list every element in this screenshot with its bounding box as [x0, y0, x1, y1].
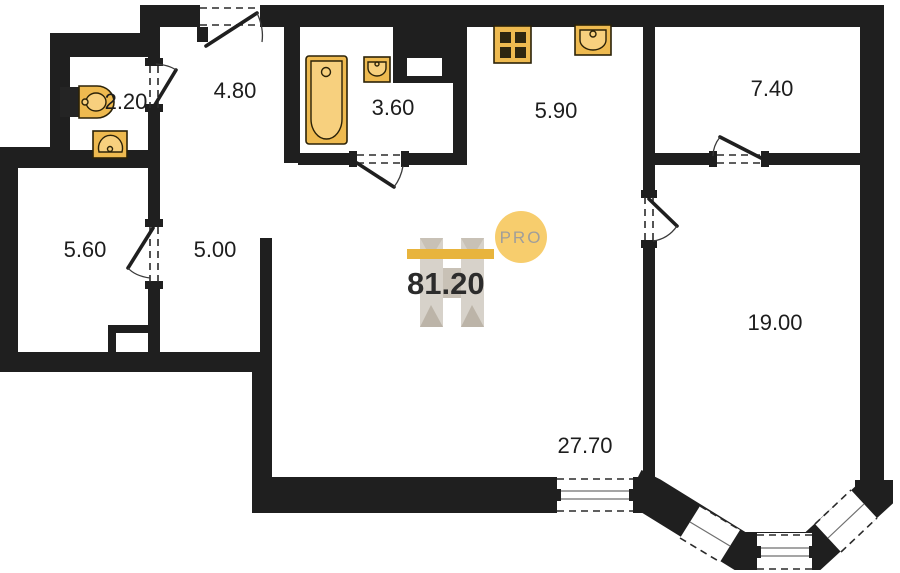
door-post [145, 281, 163, 289]
door-entrance [197, 5, 262, 46]
total-area-label: 81.20 [407, 266, 485, 301]
door-wc [150, 64, 176, 108]
window-living [553, 477, 637, 513]
wall-mid-vertical-b [148, 108, 160, 223]
door-post [145, 219, 163, 227]
bathroom-shaft-niche [407, 58, 442, 76]
room-label-corridor: 5.00 [194, 237, 237, 262]
door-storage [128, 227, 158, 283]
door-bedroom [645, 197, 677, 242]
wall-bathroom-left [284, 22, 300, 163]
window-post [553, 489, 561, 501]
door-bathroom [357, 155, 403, 187]
kitchen-sink-icon [575, 25, 611, 55]
door-post [401, 151, 409, 167]
floor-plan-svg: PRO 81.20 2.20 4.80 3.60 5.90 7.40 5.60 … [0, 0, 900, 573]
room-label-hallway: 4.80 [214, 78, 257, 103]
wall-corridor-lower [252, 352, 272, 482]
wc-sink-icon [93, 131, 127, 158]
room-label-kitchen: 5.90 [535, 98, 578, 123]
door-room740 [713, 137, 761, 163]
wall-left-outer [0, 147, 18, 372]
wall-bottom-outer [252, 477, 557, 513]
wall-kitchen-room740 [643, 27, 655, 163]
gold-bar [407, 249, 494, 259]
window-post [753, 546, 761, 558]
toilet-tank [60, 87, 79, 117]
wall-top-right [260, 5, 880, 27]
door-post [641, 190, 657, 198]
window-bay-center [753, 533, 817, 571]
wall-corridor [260, 238, 272, 352]
pro-badge-label: PRO [500, 228, 543, 247]
room-label-room740: 7.40 [751, 76, 794, 101]
stove-icon [494, 26, 531, 63]
wall-740-bottom-a [643, 153, 713, 165]
room-label-living: 27.70 [557, 433, 612, 458]
window-glass [757, 533, 812, 571]
window-glass [557, 477, 633, 513]
floor-plan-canvas: PRO 81.20 2.20 4.80 3.60 5.90 7.40 5.60 … [0, 0, 900, 573]
wall-right-outer [860, 5, 884, 500]
wall-mid-vertical-c [148, 283, 160, 352]
bathroom-sink-icon [364, 57, 390, 82]
window-post [809, 546, 817, 558]
shaft-wall-left [108, 325, 116, 352]
bathtub-icon [306, 56, 347, 144]
window-post [629, 489, 637, 501]
door-post [349, 151, 357, 167]
wall-bathroom-right [453, 27, 467, 163]
room-label-bedroom: 19.00 [747, 310, 802, 335]
room-label-bathroom: 3.60 [372, 95, 415, 120]
logo: PRO 81.20 [407, 211, 547, 327]
wall-left-bottom [0, 352, 272, 372]
wall-bedroom-b [643, 242, 655, 477]
door-post [197, 27, 208, 42]
room-label-storage: 5.60 [64, 237, 107, 262]
wall-bathroom-bottom-a [298, 153, 355, 165]
room-label-wc: 2.20 [105, 89, 148, 114]
